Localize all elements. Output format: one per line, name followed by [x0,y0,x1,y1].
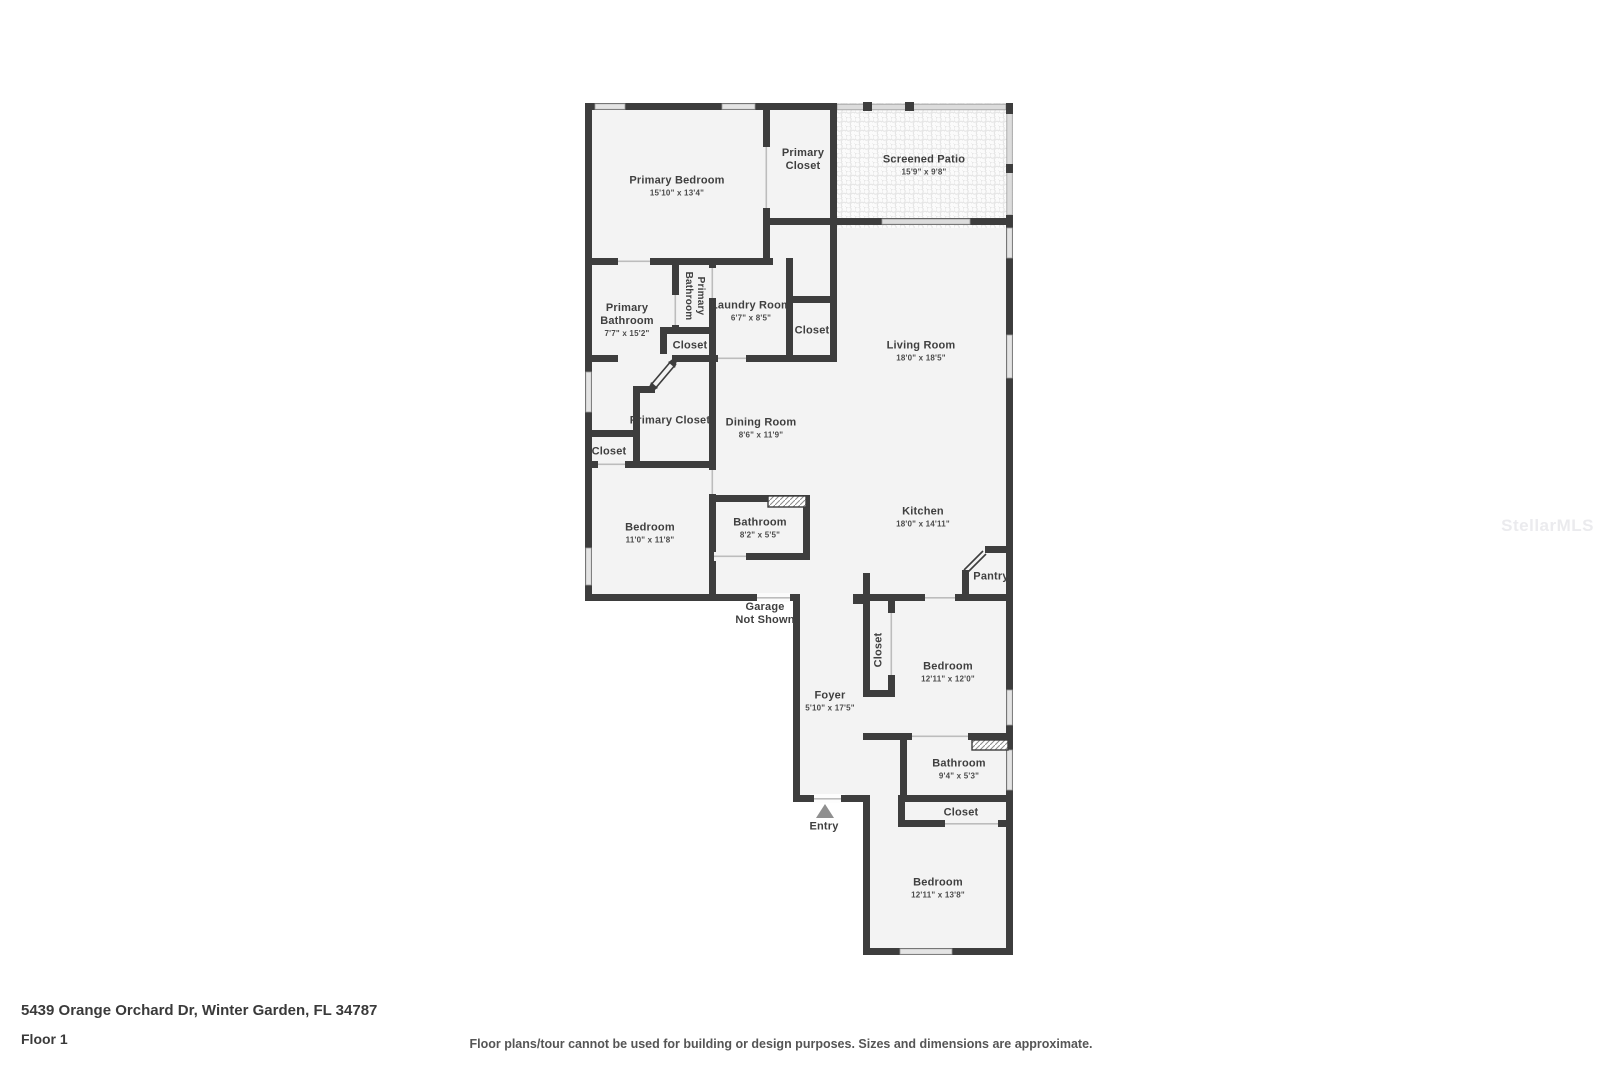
room-label-closet-laundry: Closet [795,325,830,338]
room-label-foyer: Foyer 5'10" x 17'5" [805,689,855,712]
room-label-primary-closet-lower: Primary Closet [630,415,710,428]
room-label-primary-bathroom: Primary Bathroom 7'7" x 15'2" [590,302,664,338]
room-label-bedroom-right: Bedroom 12'11" x 12'0" [921,660,975,683]
room-label-closet-foyer: Closet [873,633,886,668]
room-label-closet-bath: Closet [944,807,979,820]
floor-plan-page: Primary Bedroom 15'10" x 13'4" Primary C… [0,0,1600,1066]
room-label-bedroom-bottom: Bedroom 12'11" x 13'8" [911,876,965,899]
room-label-kitchen: Kitchen 18'0" x 14'11" [896,505,950,528]
room-label-primary-bedroom: Primary Bedroom 15'10" x 13'4" [629,174,724,197]
room-label-bathroom-mid: Bathroom 8'2" x 5'5" [733,516,787,539]
room-label-screened-patio: Screened Patio 15'9" x 9'8" [883,153,965,176]
room-label-closet-wc: Closet [673,340,708,353]
room-label-pantry: Pantry [973,571,1008,584]
garage-note: Garage Not Shown [735,601,794,627]
room-label-dining-room: Dining Room 8'6" x 11'9" [726,416,797,439]
room-label-primary-closet-top: Primary Closet [774,147,832,173]
room-label-bathroom-right: Bathroom 9'4" x 5'3" [932,757,986,780]
room-label-laundry-room: Laundry Room 6'7" x 8'5" [711,299,791,322]
room-label-living-room: Living Room 18'0" x 18'5" [887,339,956,362]
room-labels-layer: Primary Bedroom 15'10" x 13'4" Primary C… [0,0,1600,1066]
room-label-primary-bathroom-wc: Primary Bathroom [682,266,706,326]
room-label-closet-left: Closet [592,446,627,459]
entry-label: Entry [809,821,838,834]
room-label-bedroom-left: Bedroom 11'0" x 11'8" [625,521,675,544]
